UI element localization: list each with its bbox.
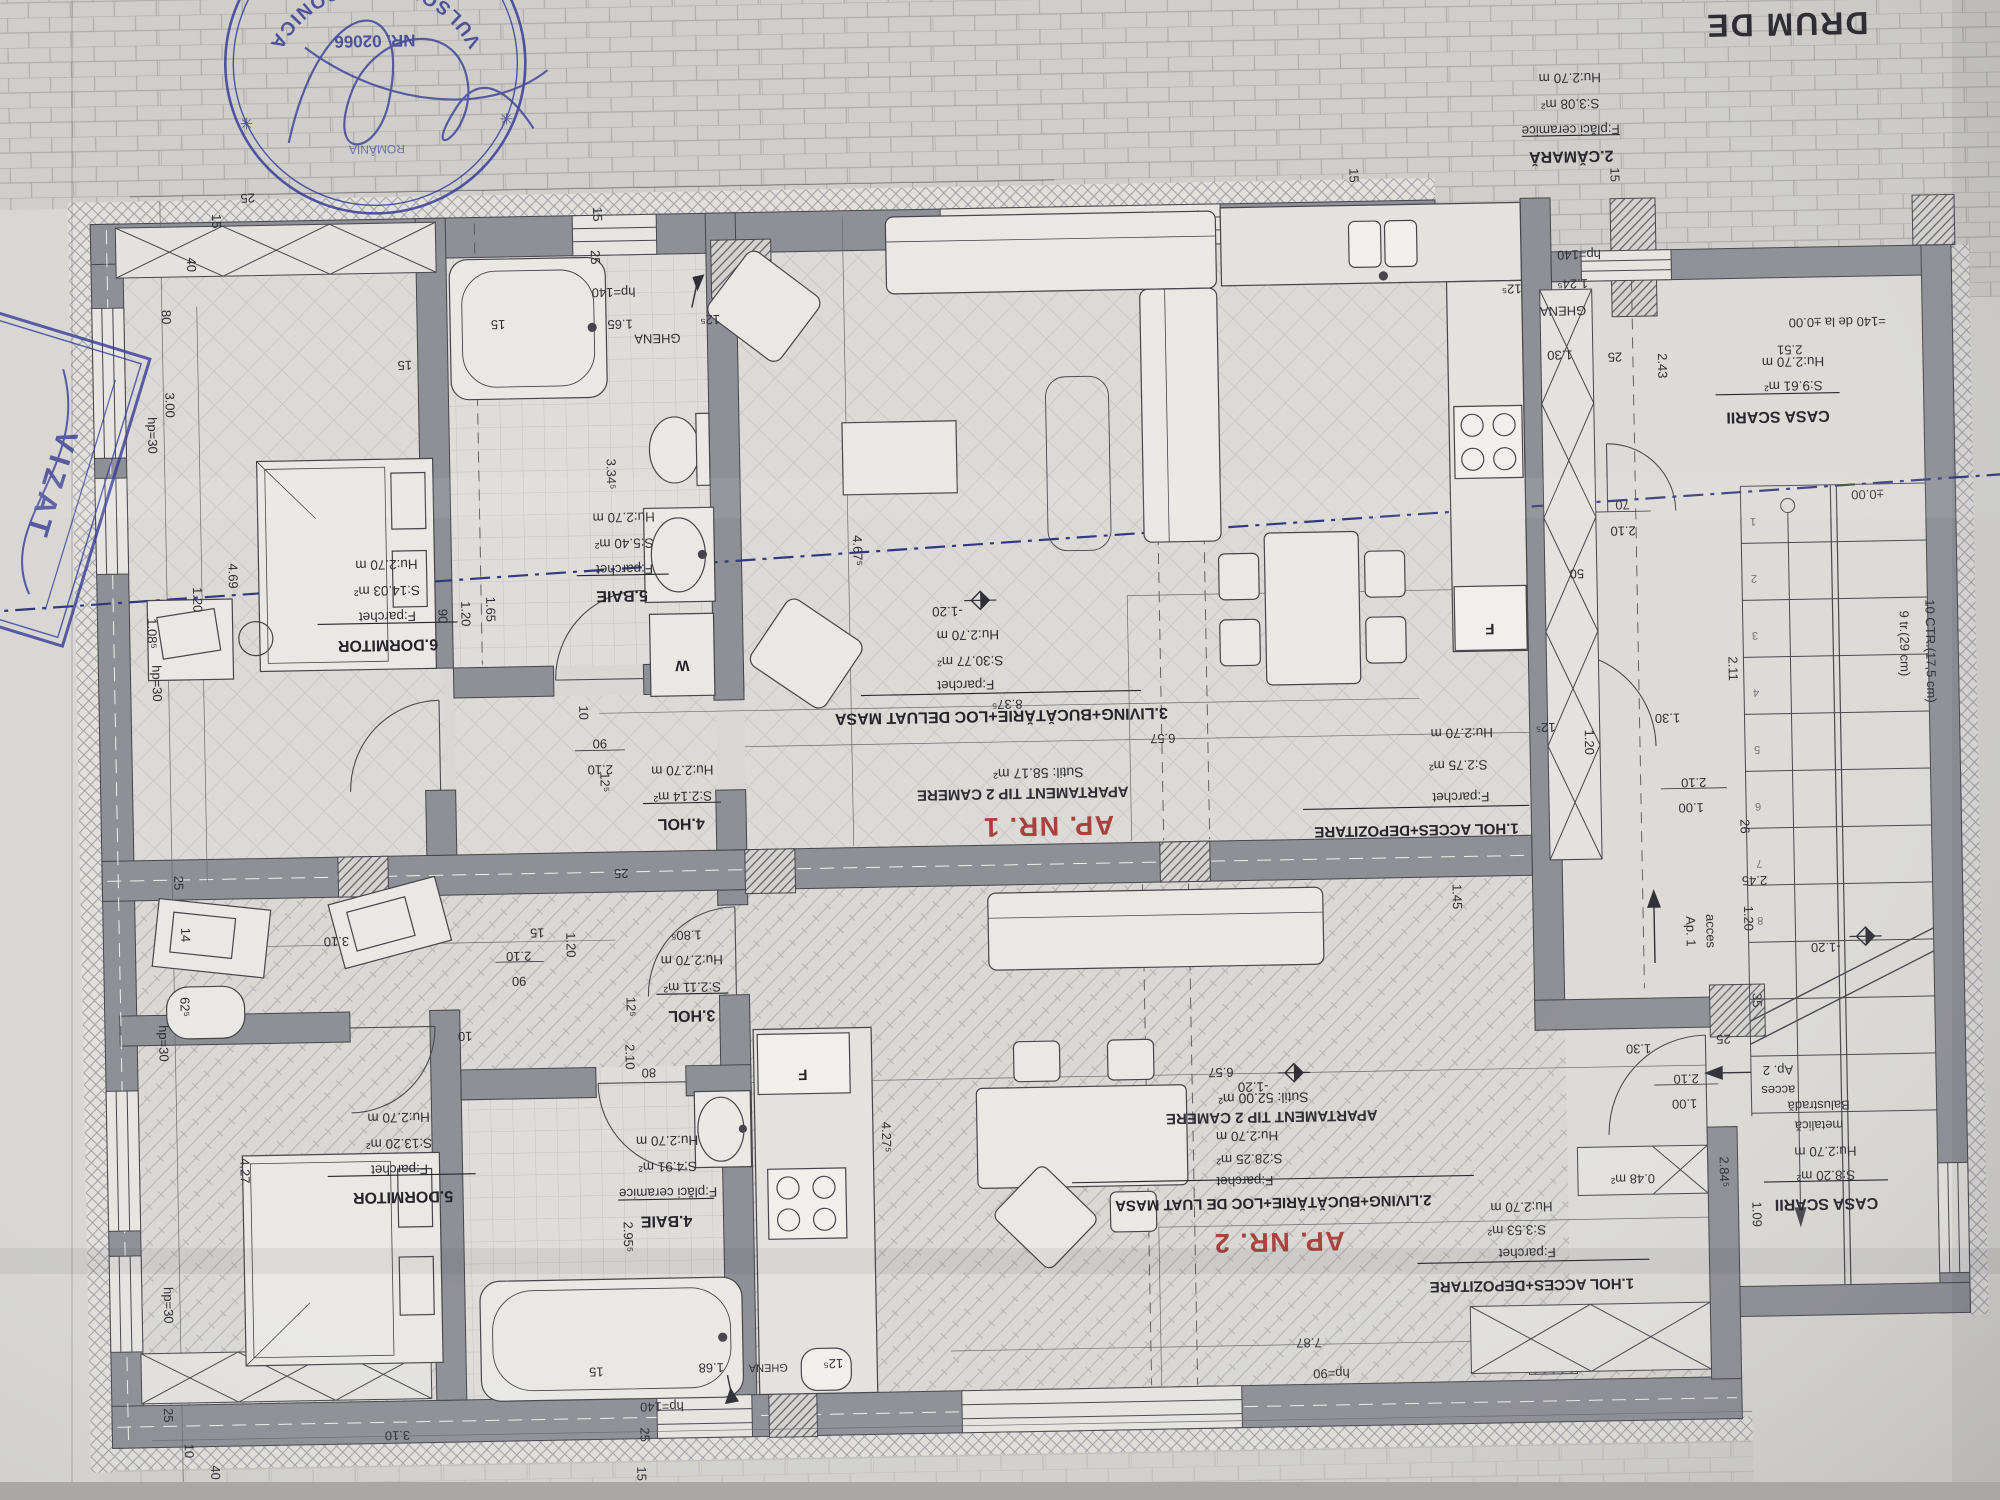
scan-artifacts <box>0 0 2000 1500</box>
scanned-floor-plan: { "street": "DRUM DE", "ap1": { "label":… <box>0 0 2000 1500</box>
